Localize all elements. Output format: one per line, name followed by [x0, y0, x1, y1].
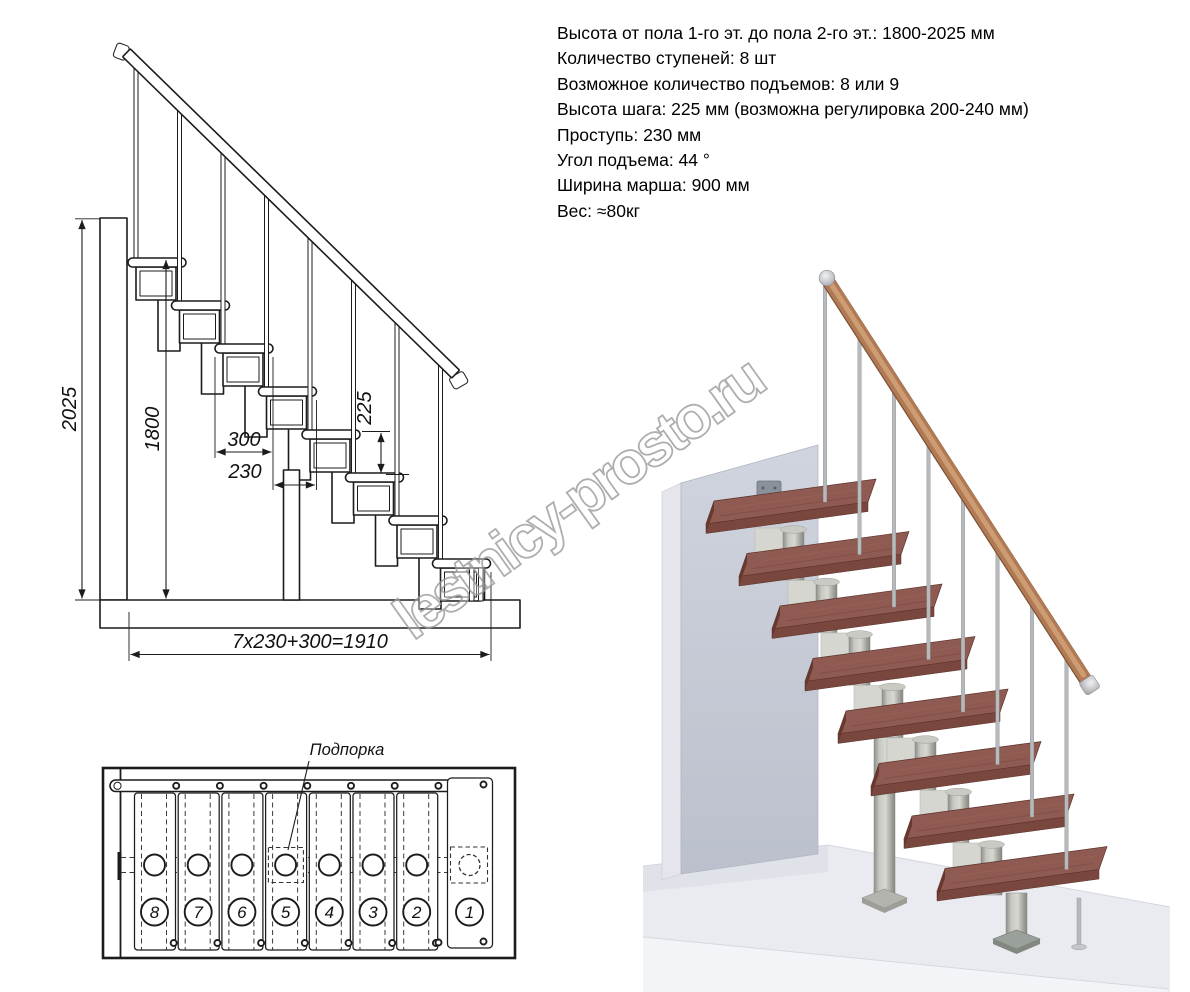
spec-line-step-count: Количество ступеней: 8 шт	[557, 46, 1029, 71]
spec-line-height-range: Высота от пола 1-го эт. до пола 2-го эт.…	[557, 21, 1029, 46]
top-view-drawing: 8765432 1 Подпорка	[103, 741, 515, 958]
support-column-side	[284, 470, 300, 600]
step-number: 5	[281, 903, 291, 922]
page: 2025 1800 300 230 225 7x230+300=1910	[0, 0, 1190, 992]
steps-side	[128, 67, 491, 609]
spec-line-rise-count: Возможное количество подъемов: 8 или 9	[557, 72, 1029, 97]
spec-line-tread: Проступь: 230 мм	[557, 123, 1029, 148]
specs-panel: Высота от пола 1-го эт. до пола 2-го эт.…	[557, 21, 1029, 224]
step-number: 7	[193, 903, 203, 922]
spec-line-step-height: Высота шага: 225 мм (возможна регулировк…	[557, 97, 1029, 122]
step-number: 2	[411, 903, 422, 922]
dim-tread-depth: 300	[227, 429, 260, 451]
step-number: 8	[150, 903, 160, 922]
spec-line-angle: Угол подъема: 44 °	[557, 148, 1029, 173]
step-number: 6	[237, 903, 247, 922]
handrail-top-view	[110, 780, 466, 792]
dim-step-rise: 225	[354, 390, 376, 425]
step-panels: 8765432	[135, 793, 438, 950]
wall-edge	[662, 483, 681, 880]
dim-total-run: 7x230+300=1910	[232, 631, 388, 653]
step-number: 1	[465, 903, 474, 922]
dim-floor-height: 1800	[142, 407, 164, 452]
dim-total-height: 2025	[59, 386, 81, 432]
spec-line-width: Ширина марша: 900 мм	[557, 173, 1029, 198]
wall-section	[100, 218, 127, 600]
step-number: 3	[368, 903, 378, 922]
handrail-top-cap	[819, 270, 835, 286]
support-label: Подпорка	[310, 741, 385, 759]
spec-line-weight: Вес: ≈80кг	[557, 199, 1029, 224]
dim-step-run: 230	[227, 461, 261, 483]
step-number: 4	[325, 903, 334, 922]
